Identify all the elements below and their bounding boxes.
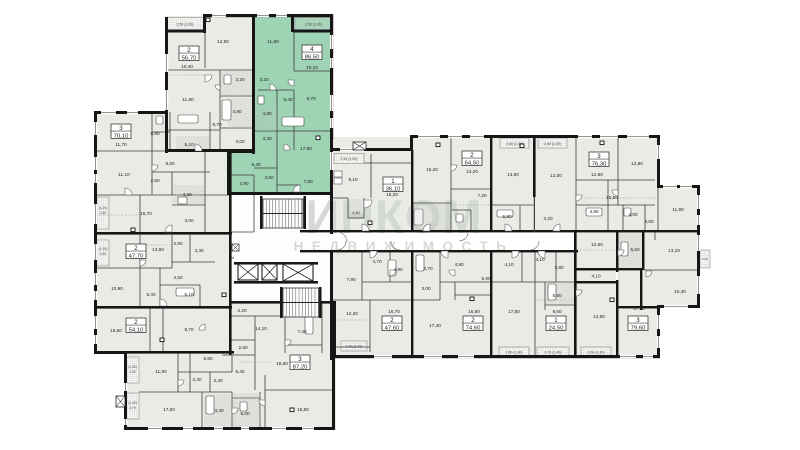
svg-text:17,40: 17,40 <box>429 323 441 328</box>
svg-text:4,80: 4,80 <box>232 109 242 114</box>
svg-text:4,00: 4,00 <box>628 212 638 217</box>
svg-text:2,60 (1,30): 2,60 (1,30) <box>588 351 605 355</box>
svg-text:5,10: 5,10 <box>184 142 194 147</box>
svg-text:4,50: 4,50 <box>173 275 183 280</box>
svg-text:2,60 (1,30): 2,60 (1,30) <box>506 351 523 355</box>
svg-text:5,60: 5,60 <box>630 247 640 252</box>
svg-text:47,70: 47,70 <box>129 253 144 259</box>
svg-text:2,40 (1,20): 2,40 (1,20) <box>341 157 358 161</box>
svg-text:10,50: 10,50 <box>606 195 618 200</box>
svg-text:12,50: 12,50 <box>217 39 229 44</box>
svg-text:56,70: 56,70 <box>182 55 197 61</box>
svg-text:79,60: 79,60 <box>631 325 646 331</box>
svg-text:3,20: 3,20 <box>259 77 269 82</box>
svg-text:74,60: 74,60 <box>466 325 481 331</box>
svg-text:12,80: 12,80 <box>631 161 643 166</box>
svg-text:3,20: 3,20 <box>235 77 245 82</box>
svg-text:87,20: 87,20 <box>293 364 308 370</box>
svg-text:16,20: 16,20 <box>386 192 398 197</box>
svg-text:54,10: 54,10 <box>129 327 144 333</box>
svg-text:4,10: 4,10 <box>535 257 545 262</box>
svg-text:3,70: 3,70 <box>423 266 433 271</box>
svg-text:3,50: 3,50 <box>264 175 274 180</box>
svg-text:2,50: 2,50 <box>129 370 136 374</box>
svg-text:86,50: 86,50 <box>305 54 320 60</box>
svg-text:4,80: 4,80 <box>589 209 599 214</box>
svg-text:(1,40): (1,40) <box>128 401 137 405</box>
svg-text:4,80: 4,80 <box>262 111 272 116</box>
svg-text:24,50: 24,50 <box>549 325 564 331</box>
svg-text:3,90: 3,90 <box>239 181 249 186</box>
svg-text:3,30: 3,30 <box>262 136 272 141</box>
svg-text:2,40: 2,40 <box>213 378 223 383</box>
svg-text:11,80: 11,80 <box>267 39 279 44</box>
svg-text:17,00: 17,00 <box>163 407 175 412</box>
svg-text:4,30: 4,30 <box>194 248 204 253</box>
svg-text:2,50: 2,50 <box>150 178 160 183</box>
svg-text:10,30: 10,30 <box>674 289 686 294</box>
svg-text:2,20: 2,20 <box>100 252 107 256</box>
svg-text:2,30: 2,30 <box>192 377 202 382</box>
svg-text:4,40: 4,40 <box>182 192 192 197</box>
svg-text:2,90: 2,90 <box>173 241 183 246</box>
svg-text:3,00: 3,00 <box>235 139 245 144</box>
svg-text:12,00: 12,00 <box>550 173 562 178</box>
svg-text:13,20: 13,20 <box>466 169 478 174</box>
svg-text:16,70: 16,70 <box>388 309 400 314</box>
svg-text:15,50: 15,50 <box>297 407 309 412</box>
svg-text:11,80: 11,80 <box>182 97 194 102</box>
svg-text:5,40: 5,40 <box>235 369 245 374</box>
svg-text:5,40: 5,40 <box>283 97 293 102</box>
svg-text:11,90: 11,90 <box>155 369 167 374</box>
svg-text:9,70: 9,70 <box>306 96 316 101</box>
svg-text:3,20: 3,20 <box>543 216 553 221</box>
svg-text:15,70: 15,70 <box>140 211 152 216</box>
svg-text:4,50: 4,50 <box>352 211 359 215</box>
svg-text:70,10: 70,10 <box>114 133 129 139</box>
svg-text:5,80: 5,80 <box>150 131 160 136</box>
svg-text:2,50 (1,30): 2,50 (1,30) <box>177 23 194 27</box>
svg-text:4,90: 4,90 <box>393 267 403 272</box>
svg-text:7,40: 7,40 <box>297 329 307 334</box>
svg-text:4,10: 4,10 <box>591 274 601 279</box>
svg-text:5,10: 5,10 <box>184 292 194 297</box>
svg-text:13,60: 13,60 <box>152 247 164 252</box>
svg-text:5,60: 5,60 <box>552 293 562 298</box>
svg-text:3,80: 3,80 <box>554 265 564 270</box>
svg-text:2,70 (1,40): 2,70 (1,40) <box>545 351 562 355</box>
svg-text:18,60: 18,60 <box>276 361 288 366</box>
svg-text:13,10: 13,10 <box>668 248 680 253</box>
svg-text:11,70: 11,70 <box>115 142 127 147</box>
svg-text:2,40 (1,20): 2,40 (1,20) <box>346 345 363 349</box>
svg-text:5,30: 5,30 <box>146 292 156 297</box>
svg-text:2,20: 2,20 <box>237 308 247 313</box>
svg-text:4,90: 4,90 <box>454 262 464 267</box>
svg-text:14,10: 14,10 <box>255 326 267 331</box>
svg-text:2,40: 2,40 <box>100 211 107 215</box>
svg-text:10,40: 10,40 <box>181 64 193 69</box>
svg-text:2,60 (1,30): 2,60 (1,30) <box>544 142 561 146</box>
svg-text:11,90: 11,90 <box>672 207 684 212</box>
svg-text:17,50: 17,50 <box>508 309 520 314</box>
svg-text:12,60: 12,60 <box>591 242 603 247</box>
svg-text:7,20: 7,20 <box>477 193 487 198</box>
svg-text:2,70: 2,70 <box>129 406 136 410</box>
svg-text:10,10: 10,10 <box>306 65 318 70</box>
svg-text:2,60: 2,60 <box>238 345 248 350</box>
svg-text:9,60: 9,60 <box>165 161 175 166</box>
svg-text:9,10: 9,10 <box>348 177 358 182</box>
svg-text:3,00: 3,00 <box>644 219 654 224</box>
svg-text:9,70: 9,70 <box>212 122 222 127</box>
svg-text:12,80: 12,80 <box>591 172 603 177</box>
svg-text:14,90: 14,90 <box>593 314 605 319</box>
svg-text:12,20: 12,20 <box>346 311 358 316</box>
svg-text:3,00: 3,00 <box>421 286 431 291</box>
svg-text:4,70: 4,70 <box>372 259 382 264</box>
svg-text:47,60: 47,60 <box>385 325 400 331</box>
svg-text:5,00: 5,00 <box>240 411 250 416</box>
svg-text:5,40: 5,40 <box>251 162 261 167</box>
svg-text:2,40: 2,40 <box>702 257 708 261</box>
svg-text:64,50: 64,50 <box>465 160 480 166</box>
svg-text:16,50: 16,50 <box>110 328 122 333</box>
svg-text:4,10: 4,10 <box>504 262 514 267</box>
svg-text:(1,30): (1,30) <box>128 365 137 369</box>
svg-text:2,50 (1,30): 2,50 (1,30) <box>305 23 322 27</box>
svg-text:76,30: 76,30 <box>592 161 607 167</box>
svg-text:17,50: 17,50 <box>300 146 312 151</box>
svg-text:9,60: 9,60 <box>552 309 562 314</box>
svg-text:(1,20): (1,20) <box>99 206 108 210</box>
svg-text:3,40: 3,40 <box>214 408 224 413</box>
svg-text:(1,10): (1,10) <box>99 247 108 251</box>
svg-text:7,80: 7,80 <box>303 179 313 184</box>
svg-text:5,60: 5,60 <box>203 356 213 361</box>
svg-text:17,70: 17,70 <box>633 306 645 311</box>
svg-text:16,80: 16,80 <box>468 309 480 314</box>
svg-text:3,00: 3,00 <box>184 218 194 223</box>
svg-text:10,90: 10,90 <box>111 286 123 291</box>
svg-text:11,10: 11,10 <box>118 172 130 177</box>
svg-text:8,70: 8,70 <box>184 327 194 332</box>
svg-text:5,90: 5,90 <box>481 276 491 281</box>
svg-text:13,60: 13,60 <box>507 172 519 177</box>
svg-text:16,20: 16,20 <box>426 167 438 172</box>
svg-text:5,80: 5,80 <box>502 214 512 219</box>
svg-text:7,90: 7,90 <box>346 277 356 282</box>
